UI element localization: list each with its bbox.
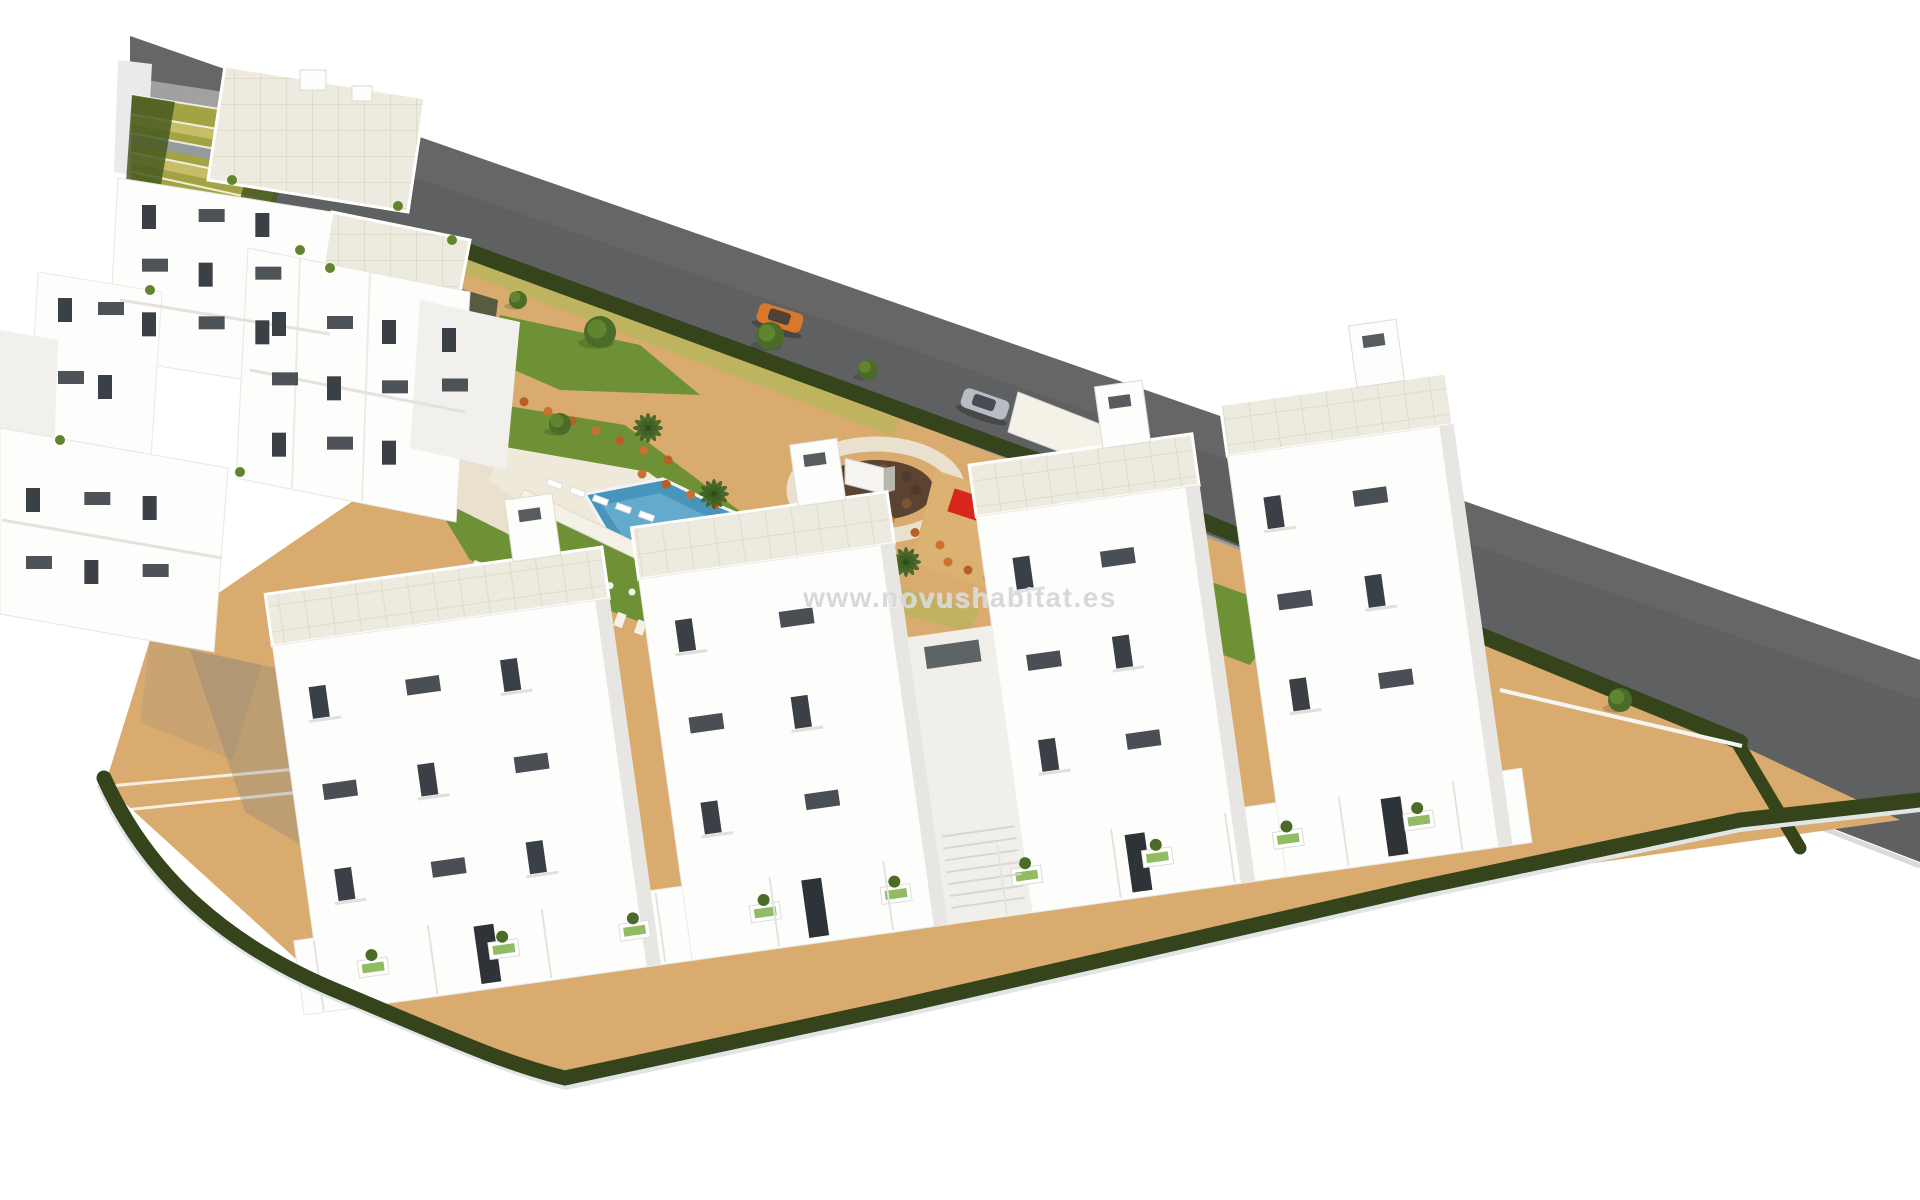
orange-shrub <box>936 541 945 550</box>
window <box>143 496 157 520</box>
site-plan-3d-render: www.novushabitat.es www.novushabitat.es <box>0 0 1920 1200</box>
stair-bulkhead <box>1348 319 1404 387</box>
window <box>272 433 286 457</box>
window <box>142 259 168 272</box>
window <box>272 372 298 385</box>
orange-shrub <box>944 558 953 567</box>
window <box>142 205 156 229</box>
orange-shrub <box>520 397 529 406</box>
stair-bulkhead <box>1094 380 1150 448</box>
orange-shrub <box>592 426 601 435</box>
window <box>327 316 353 329</box>
window <box>26 556 52 569</box>
stair-bulkhead <box>504 493 560 561</box>
window <box>26 488 40 512</box>
terrace-plant <box>227 175 237 185</box>
watermark-text: www.novushabitat.es <box>802 582 1117 613</box>
roof-bulkhead <box>300 70 326 90</box>
stair-bulkhead <box>790 438 846 506</box>
orange-shrub <box>964 566 973 575</box>
tree-highlight <box>1610 690 1624 704</box>
orange-shrub <box>686 490 695 499</box>
window <box>98 302 124 315</box>
window <box>84 492 110 505</box>
orange-shrub <box>911 528 920 537</box>
window <box>199 316 225 329</box>
orange-shrub <box>662 480 671 489</box>
window <box>442 379 468 392</box>
roof-bulkhead <box>352 86 372 101</box>
terrace-plant <box>235 467 245 477</box>
terrace-plant <box>55 435 65 445</box>
window <box>382 320 396 344</box>
window <box>143 564 169 577</box>
orange-shrub <box>640 446 649 455</box>
tree-highlight <box>759 325 776 342</box>
apartment-block-front <box>272 599 660 1013</box>
window <box>272 312 286 336</box>
palm-crown <box>903 559 909 565</box>
terrace-plant <box>393 201 403 211</box>
monument-sign-side <box>884 466 895 494</box>
window <box>58 371 84 384</box>
terrace-plant <box>145 285 155 295</box>
palm-crown <box>645 425 651 431</box>
window <box>442 328 456 352</box>
window <box>255 267 281 280</box>
white-flower-shrub <box>629 589 636 596</box>
window <box>142 312 156 336</box>
orange-shrub <box>616 436 625 445</box>
window <box>98 375 112 399</box>
window <box>199 263 213 287</box>
window <box>58 298 72 322</box>
tree-highlight <box>510 292 521 303</box>
window <box>382 441 396 465</box>
window <box>327 437 353 450</box>
tree-highlight <box>859 361 871 373</box>
orange-shrub <box>544 407 553 416</box>
palm-crown <box>711 491 717 497</box>
orange-shrub <box>638 470 647 479</box>
roundabout-shrub <box>911 485 921 495</box>
terrace-plant <box>447 235 457 245</box>
architectural-render-page: www.novushabitat.es www.novushabitat.es <box>0 0 1920 1200</box>
window <box>255 213 269 237</box>
window <box>255 320 269 344</box>
roundabout-shrub <box>902 498 912 508</box>
roundabout-shrub <box>902 472 912 482</box>
window <box>382 380 408 393</box>
terrace-plant <box>325 263 335 273</box>
window <box>327 376 341 400</box>
window <box>199 209 225 222</box>
tree-highlight <box>550 414 563 427</box>
tree-highlight <box>587 319 606 338</box>
terrace-plant <box>295 245 305 255</box>
window <box>84 560 98 584</box>
orange-shrub <box>664 456 673 465</box>
